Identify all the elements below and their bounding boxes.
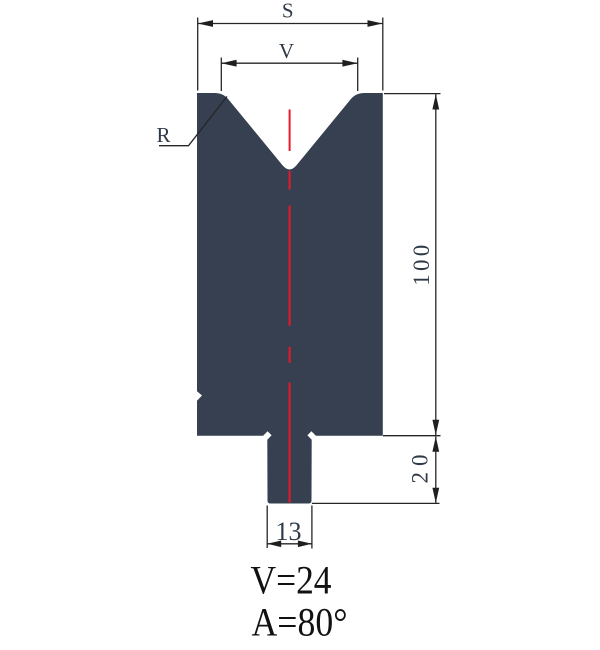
svg-text:13: 13 [276, 517, 302, 546]
svg-text:A=80°: A=80° [252, 600, 348, 645]
svg-text:V=24: V=24 [251, 558, 332, 603]
svg-text:100: 100 [409, 245, 434, 286]
svg-text:S: S [282, 0, 294, 23]
svg-text:V: V [279, 39, 294, 63]
svg-text:R: R [156, 123, 170, 147]
